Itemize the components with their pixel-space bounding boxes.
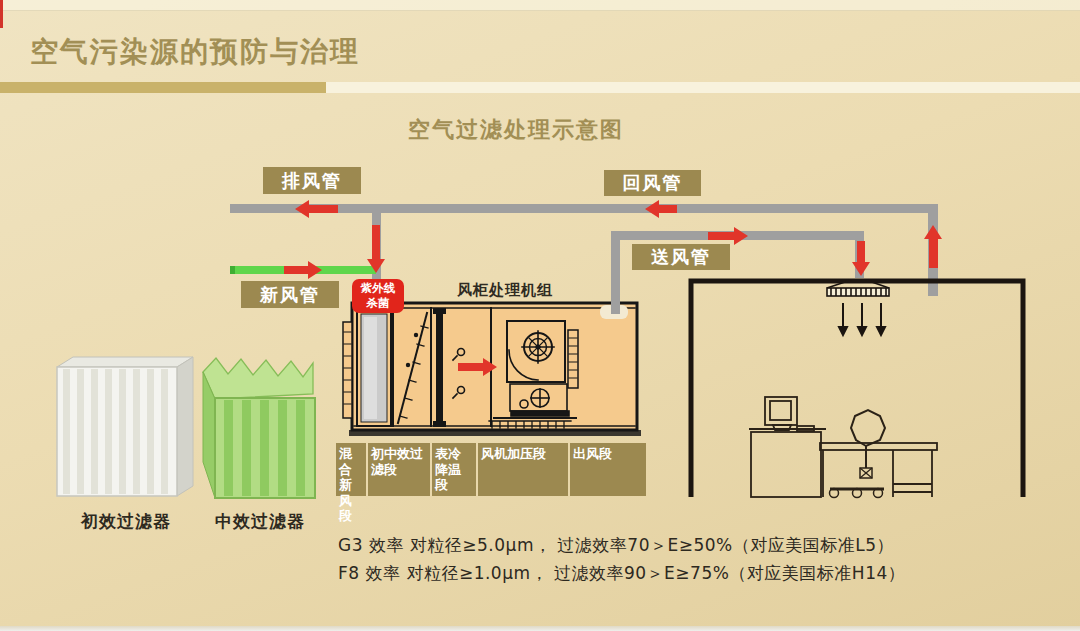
fresh-arrow-icon [284,261,322,279]
ahu-section-bar: 混合新风段 初中效过滤段 表冷降温段 风机加压段 出风段 [336,443,648,496]
mix-down-arrow-icon [367,225,385,273]
return-arrow-icon [645,200,677,218]
ahu-section-label: 表冷降温段 [432,443,476,496]
room-up-arrow-icon [924,225,942,268]
efficiency-note-f8: F8 效率 对粒径≥1.0μm， 过滤效率90＞E≥75%（对应美国标准H14） [338,562,905,585]
ahu-section-label: 出风段 [570,443,646,496]
computer-desk-icon [749,397,826,497]
ahu-section-label: 初中效过滤段 [368,443,430,496]
supply-duct-label: 送风管 [632,244,730,270]
intake-louver-icon [343,322,352,418]
ahu-section-label: 混合新风段 [336,443,366,496]
damper-icon [568,330,578,388]
bottom-edge-strip [0,626,1080,631]
exhaust-duct-label: 排风管 [263,167,361,194]
uv-badge-line1: 紫外线 [361,281,396,296]
primary-filter-caption: 初效过滤器 [66,510,186,533]
ahu-title: 风柜处理机组 [450,281,560,300]
bag-filter-image [203,358,315,498]
primary-filter-image [57,357,193,496]
room-outline [691,280,1023,498]
airflow-arrows-icon [839,303,885,335]
slide: 空气污染源的预防与治理 空气过滤处理示意图 [0,0,1080,631]
medium-filter-caption: 中效过滤器 [200,510,320,533]
diffuser-down-arrow-icon [852,241,870,276]
office-chair-icon [830,410,886,498]
return-duct-label: 回风管 [604,170,701,196]
uv-badge-line2: 杀菌 [367,296,390,311]
fresh-duct-label: 新风管 [241,281,339,308]
ahu-section-label: 风机加压段 [478,443,568,496]
ahu-drawing [343,231,641,436]
supply-arrow-icon [708,227,748,245]
uv-sterilization-badge: 紫外线 杀菌 [352,279,404,313]
exhaust-arrow-icon [295,200,338,218]
efficiency-note-g3: G3 效率 对粒径≥5.0μm， 过滤效率70＞E≥50%（对应美国标准L5） [338,534,894,557]
